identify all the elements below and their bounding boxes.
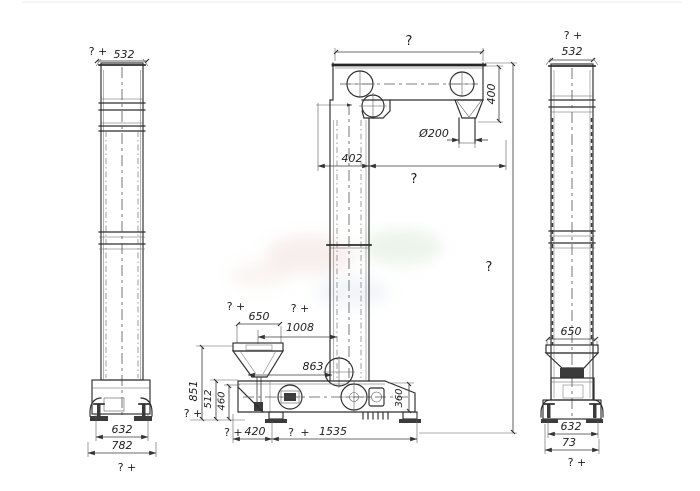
boot-grate	[363, 413, 388, 419]
boot-upper-height-label: 512	[203, 389, 214, 408]
right-hopper-width-label: 650	[561, 325, 582, 338]
watermark	[230, 229, 442, 306]
head-span-label: ?	[411, 172, 418, 187]
inlet-height-label: 851	[187, 381, 200, 402]
elevator-leg	[327, 100, 371, 381]
left-top-width-label: 532	[114, 48, 135, 61]
head-height-dimension: 400	[478, 66, 503, 122]
left-column-view: ? + 532	[88, 45, 156, 474]
head-height-label: 400	[485, 84, 498, 105]
right-base-inner-label: 632	[561, 420, 582, 433]
hopper-note: ? +	[227, 300, 246, 313]
head-pulley-right	[448, 71, 476, 97]
boot-feet	[265, 412, 421, 423]
bend-pulley	[323, 356, 355, 388]
right-top-width-label: 532	[562, 45, 583, 58]
right-bottom-dimensions: 632 73 ? +	[545, 420, 599, 469]
feed-hopper: ? + 650 ? + 1008	[227, 300, 337, 411]
left-column-base	[90, 380, 152, 421]
front-view: ?	[184, 34, 517, 443]
overall-width-dimension: ?	[335, 34, 483, 61]
inlet-note: ? +	[291, 302, 310, 315]
left-bottom-dimensions: 632 782 ? +	[88, 414, 156, 474]
base-right-span-label: 1535	[319, 425, 347, 438]
pulley-span-dimension: 863	[248, 360, 332, 375]
spout-diameter-dimension: Ø200	[418, 127, 506, 170]
right-top-note: ? +	[564, 29, 583, 42]
left-base-outer-label: 782	[112, 439, 133, 452]
left-bottom-note: ? +	[118, 461, 137, 474]
left-base-inner-label: 632	[112, 423, 133, 436]
right-base-outer-label: 73	[562, 436, 576, 449]
pulley-span-label: 863	[303, 360, 324, 373]
boot-height-label: 460	[217, 391, 228, 410]
head-pulley-left	[345, 70, 375, 98]
base-left-span-label: 420	[245, 425, 266, 438]
hopper-width-label: 650	[249, 310, 270, 323]
boot-pulley-right	[339, 382, 369, 412]
ground-note: ? +	[184, 407, 203, 420]
technical-drawing: ? + 532	[0, 0, 700, 491]
overall-width-label: ?	[406, 34, 413, 49]
base-right-plus: +	[300, 426, 309, 439]
boot-pulley-left	[276, 385, 304, 409]
left-column-body	[99, 63, 145, 415]
inlet-height-dimensions: 851 512 460 ? +	[184, 346, 245, 420]
overall-height-label: ?	[486, 260, 493, 275]
spout-diameter-label: Ø200	[418, 127, 449, 140]
head-section	[333, 63, 485, 148]
right-bottom-note: ? +	[568, 456, 587, 469]
base-left-note: ?	[224, 426, 230, 439]
right-column-view: ? + 532 650	[541, 29, 603, 469]
inlet-span-label: 1008	[286, 321, 314, 334]
drive-height-label: 360	[394, 388, 405, 407]
head-offset-label: 402	[342, 152, 363, 165]
right-top-dimension: ? + 532	[546, 29, 598, 65]
discharge-chute	[455, 100, 483, 148]
base-left-plus: +	[233, 426, 242, 439]
base-right-note: ?	[288, 426, 294, 439]
right-column-body	[549, 64, 595, 420]
left-top-note: ? +	[89, 45, 108, 58]
